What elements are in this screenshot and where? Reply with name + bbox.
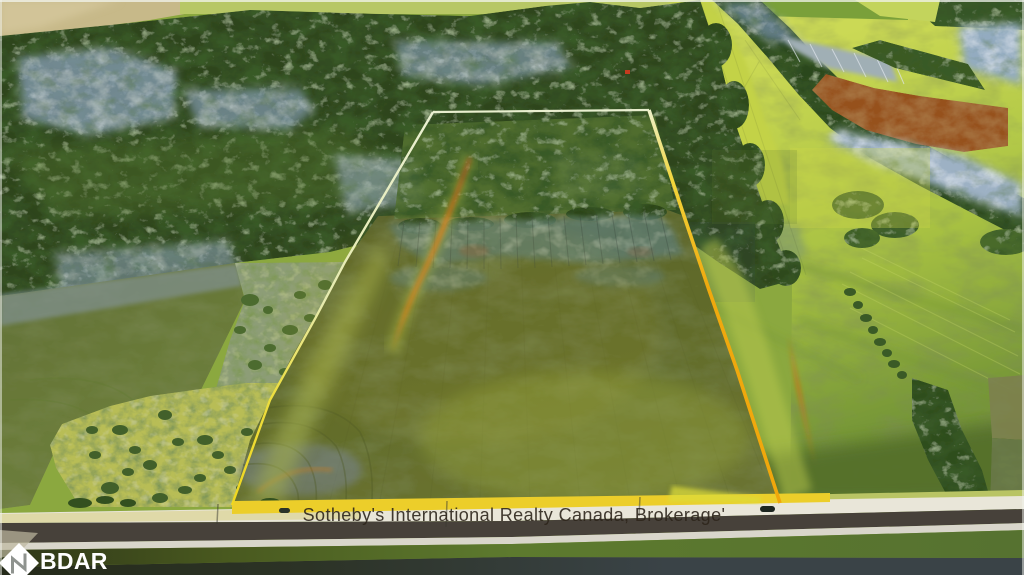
svg-text:Sotheby's International Realty: Sotheby's International Realty Canada, B… bbox=[303, 505, 726, 525]
svg-text:BDAR: BDAR bbox=[40, 548, 108, 574]
